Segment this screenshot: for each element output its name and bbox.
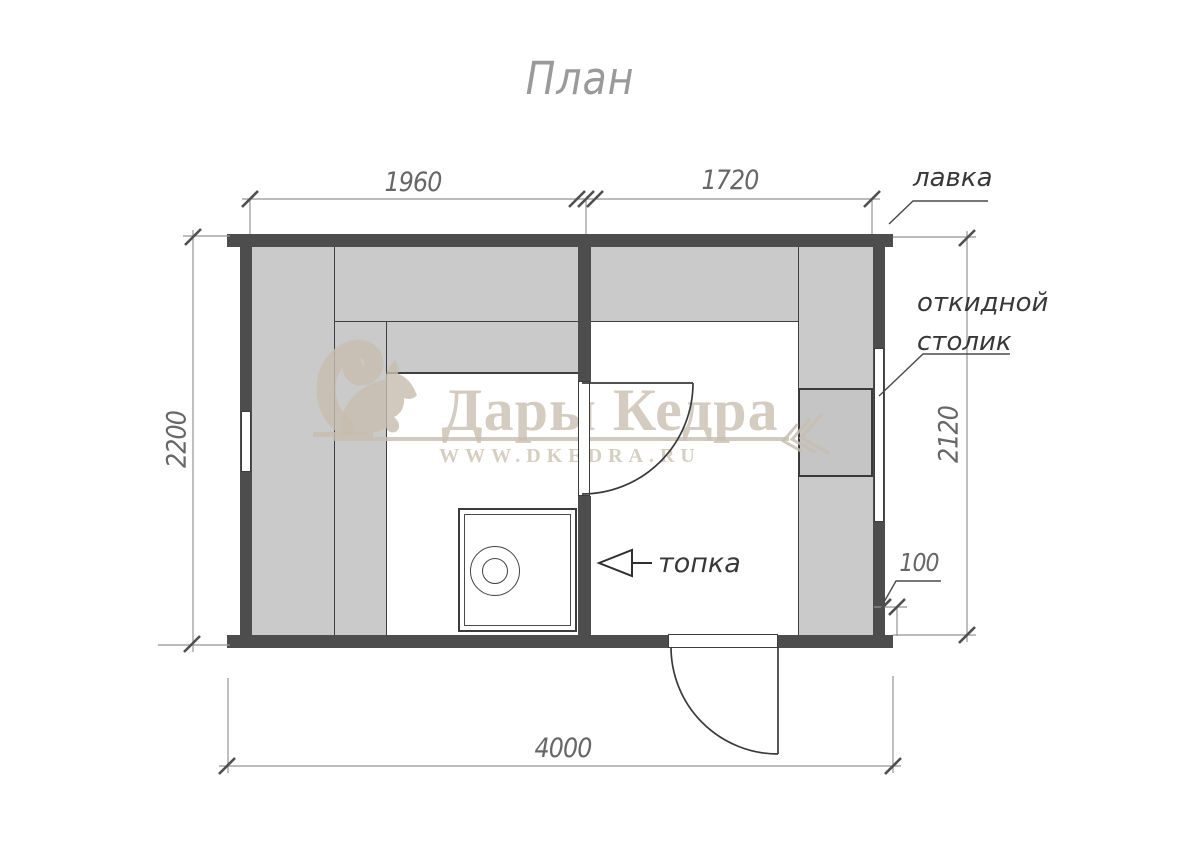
stove-chimney-inner-icon: [482, 558, 508, 584]
sauna-bench-top: [334, 247, 578, 321]
right-window: [874, 348, 884, 522]
watermark-underline: [333, 437, 789, 441]
dimension-corner-offset: 100: [884, 548, 954, 577]
folding-table-label-line1: откидной: [917, 284, 1047, 323]
bench-edge-line: [386, 321, 388, 635]
dimension-top-left: 1960: [360, 167, 466, 198]
dimension-left-height: 2200: [162, 387, 193, 493]
watermark-brand: Дары Кедра: [420, 376, 800, 445]
watermark-site: WWW.DKEDRA.RU: [430, 445, 710, 468]
bench-divider-line: [334, 247, 336, 635]
folding-table: [798, 388, 873, 477]
firebox-arrow-icon: [599, 550, 652, 576]
dimension-top-right: 1720: [677, 165, 783, 196]
page-title: План: [474, 52, 685, 105]
dimension-right-height: 2120: [934, 382, 965, 488]
bench-tier-edge-line: [386, 372, 578, 374]
left-window: [241, 411, 251, 472]
folding-table-label: откидной столик: [917, 284, 1047, 362]
anteroom-bench-edge-line: [591, 321, 798, 323]
bench-label: лавка: [913, 163, 1023, 193]
entrance-doorway: [668, 634, 778, 648]
dimension-total-width: 4000: [510, 733, 616, 764]
sauna-doorway: [578, 381, 590, 496]
bench-top-edge-line: [334, 321, 578, 323]
partition-wall-lower: [578, 496, 591, 635]
folding-table-label-line2: столик: [917, 323, 1047, 362]
bottom-wall: [227, 635, 893, 648]
firebox-label: топка: [658, 548, 768, 579]
sauna-bench-tier: [386, 321, 578, 373]
partition-wall-upper: [578, 247, 591, 382]
entrance-door: [671, 647, 778, 754]
stove: [458, 508, 577, 632]
top-wall: [227, 234, 893, 247]
anteroom-bench-top: [591, 247, 798, 321]
floor-plan-canvas: План Дары Кедра WWW.DKEDRA.RU: [0, 0, 1200, 848]
